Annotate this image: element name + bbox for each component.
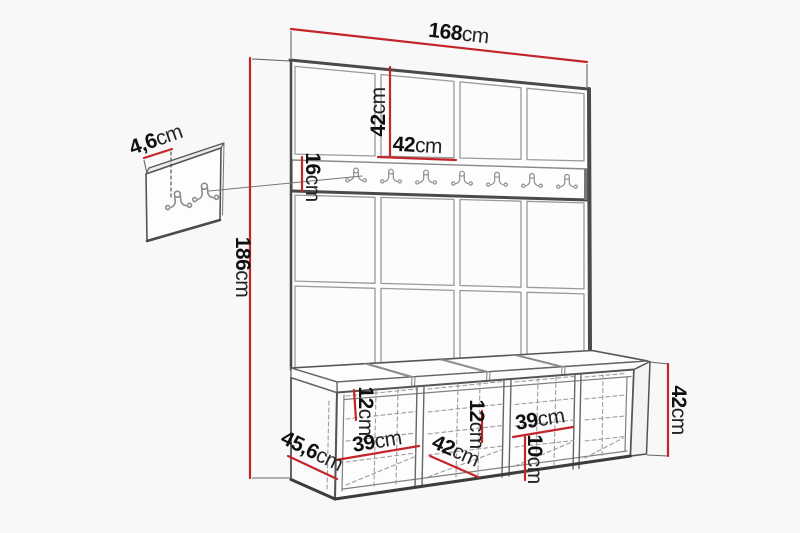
panel-tile <box>460 291 521 359</box>
bench-right-end <box>631 362 651 457</box>
panel-tile <box>295 195 375 283</box>
panel-tile <box>295 66 375 156</box>
dim-label-tile-height: 42cm <box>367 87 390 136</box>
panel-tile <box>527 88 584 161</box>
panel-tile-row-middle <box>295 195 584 289</box>
furniture-dimension-drawing: 168cm 186cm 42cm 42cm 16cm 4,6cm 45,6cm … <box>0 0 800 533</box>
panel-tile <box>381 288 454 363</box>
dimension-drawing-page: 168cm 186cm 42cm 42cm 16cm 4,6cm 45,6cm … <box>0 0 800 533</box>
dim-label-bench-height: 42cm <box>667 385 690 434</box>
dim-label-shelf-mid: 12cm <box>465 399 488 448</box>
dim-label-shelf-right: 10cm <box>523 434 546 483</box>
dim-label-shelf-left: 12cm <box>354 386 377 435</box>
panel-tile <box>527 201 584 289</box>
dim-label-total-height: 186cm <box>231 237 254 298</box>
panel-tile <box>295 286 375 368</box>
panel-tile <box>381 197 454 285</box>
dim-label-tile-width: 42cm <box>392 133 442 159</box>
panel-tile <box>460 200 521 288</box>
panel-tile <box>527 292 584 354</box>
panel-tile <box>460 82 521 159</box>
panel-right-edge <box>589 89 590 351</box>
wall-panel <box>290 60 591 370</box>
dim-label-rail-height: 16cm <box>301 152 324 201</box>
